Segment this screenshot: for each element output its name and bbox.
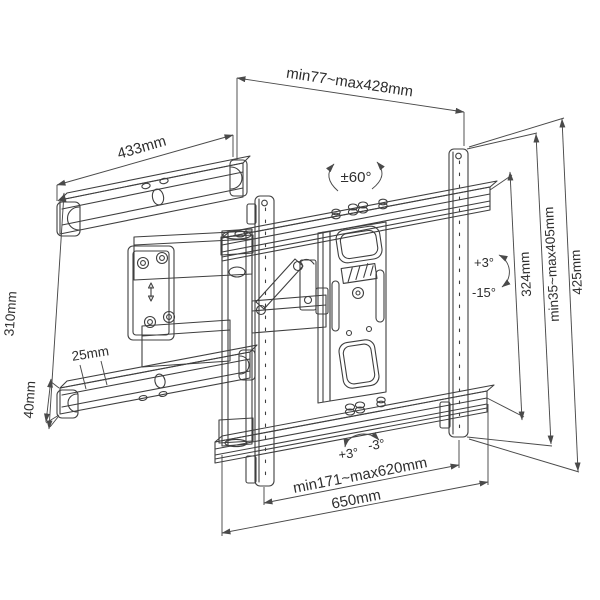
dim-label-tilt-up: +3° — [474, 255, 494, 270]
dim-label-wall-plate-height: 310mm — [1, 291, 19, 337]
dim-arm-hole-offset — [80, 361, 107, 389]
dim-label-bracket-width: 650mm — [330, 486, 382, 512]
dim-label-rail-spacing: 324mm — [517, 251, 534, 297]
dim-label-bracket-height: 425mm — [568, 249, 585, 295]
articulating-arm — [128, 229, 328, 447]
technical-drawing-canvas: min77~max428mm 433mm ±60° +3° -15° 324mm… — [0, 0, 600, 600]
dim-label-arm-hole-offset: 25mm — [71, 343, 110, 364]
dim-label-level-plus: +3° — [337, 445, 359, 463]
dim-label-wall-rail-length: 433mm — [115, 133, 168, 163]
dim-label-tilt-down: -15° — [472, 285, 496, 300]
updown-arrow-icon — [149, 283, 154, 301]
ratchet-strip — [341, 263, 377, 284]
tilt-arc-icon — [499, 255, 509, 287]
mount-drawing — [57, 149, 497, 486]
tv-mount-diagram: min77~max428mm 433mm ±60° +3° -15° 324mm… — [0, 0, 600, 600]
dim-label-swivel-range: ±60° — [341, 169, 372, 186]
wall-rail-top — [57, 156, 250, 236]
dimension-labels: min77~max428mm 433mm ±60° +3° -15° 324mm… — [1, 65, 585, 513]
tv-rail-top — [222, 181, 497, 261]
dim-label-arm-thickness: 40mm — [21, 380, 39, 418]
dim-label-level-minus: -3° — [367, 436, 386, 453]
